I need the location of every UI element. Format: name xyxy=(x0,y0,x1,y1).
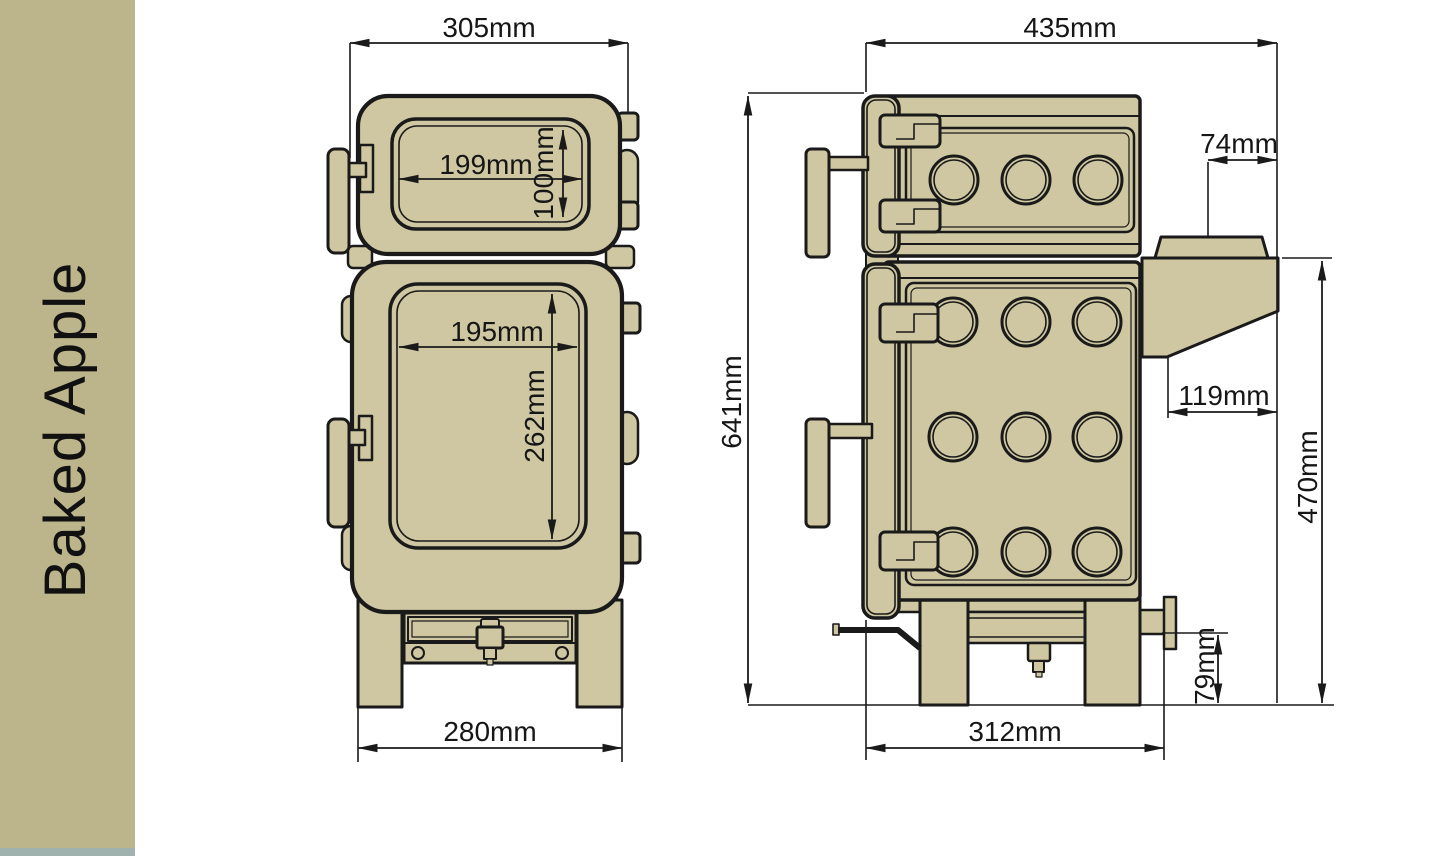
side-rear-leg xyxy=(1085,590,1140,705)
dim-label-overall-height: 641mm xyxy=(716,355,747,448)
side-view: 435mm 74mm 641mm 119mm 470mm 79mm xyxy=(716,12,1334,760)
dim-label-rear-height: 470mm xyxy=(1292,430,1323,523)
side-latch-pin xyxy=(1033,661,1044,672)
dim-front-base-width: 280mm xyxy=(358,707,622,762)
dim-rear-height: 470mm xyxy=(1282,258,1332,703)
dim-label-flue-offset: 74mm xyxy=(1200,128,1278,159)
stove-dimension-drawing: 305mm 199mm 100mm 195mm 262mm 280mm xyxy=(0,0,1447,856)
dim-label-outlet-height: 79mm xyxy=(1189,627,1220,705)
flue-bracket xyxy=(1142,258,1278,357)
upper-door-handle xyxy=(328,149,349,253)
side-latch xyxy=(1028,643,1050,661)
front-base xyxy=(358,600,622,707)
front-view: 305mm 199mm 100mm 195mm 262mm 280mm xyxy=(328,12,640,762)
drawer-side xyxy=(968,612,1085,643)
side-flue-bracket xyxy=(1142,237,1278,357)
front-left-leg xyxy=(358,600,402,707)
dim-label-rear-gap: 119mm xyxy=(1178,380,1269,411)
side-latch-tip xyxy=(1036,672,1042,677)
front-lower-door xyxy=(328,262,640,612)
dim-upper-window-height: 100mm xyxy=(528,126,563,219)
side-upper-handle xyxy=(806,149,829,257)
side-front-leg xyxy=(920,588,968,705)
dim-label-depth: 435mm xyxy=(1023,12,1116,43)
side-lower-handle xyxy=(806,419,829,527)
side-upper-handle-pin xyxy=(828,157,868,170)
poker-tool xyxy=(838,630,920,648)
dim-label-upper-window-width: 199mm xyxy=(439,149,532,180)
dim-label-lower-window-width: 195mm xyxy=(450,316,543,347)
lower-door-handle xyxy=(328,419,349,527)
side-hinge-block xyxy=(880,200,940,232)
drawer-latch xyxy=(477,627,503,648)
side-hinge-block xyxy=(880,115,940,147)
upper-handle-pin xyxy=(348,163,366,177)
front-right-leg xyxy=(577,600,622,707)
latch-tip xyxy=(487,659,493,665)
dim-rear-gap: 119mm xyxy=(1168,358,1277,418)
side-hinge-block xyxy=(880,532,938,570)
flue-top-block xyxy=(1155,237,1268,258)
front-joint-right xyxy=(606,246,634,268)
latch-pin xyxy=(484,648,496,659)
side-lower-handle-pin xyxy=(828,424,872,438)
side-hinge-block xyxy=(880,304,938,342)
lower-handle-pin xyxy=(348,430,365,445)
outlet-flange xyxy=(1164,597,1176,649)
dim-flue-offset: 74mm xyxy=(1200,128,1278,238)
dim-label-front-width: 305mm xyxy=(442,12,535,43)
dim-label-lower-window-height: 262mm xyxy=(519,369,550,462)
dim-label-base-width: 280mm xyxy=(443,716,536,747)
dim-label-base-depth: 312mm xyxy=(968,716,1061,747)
dim-label-upper-window-height: 100mm xyxy=(528,126,559,219)
